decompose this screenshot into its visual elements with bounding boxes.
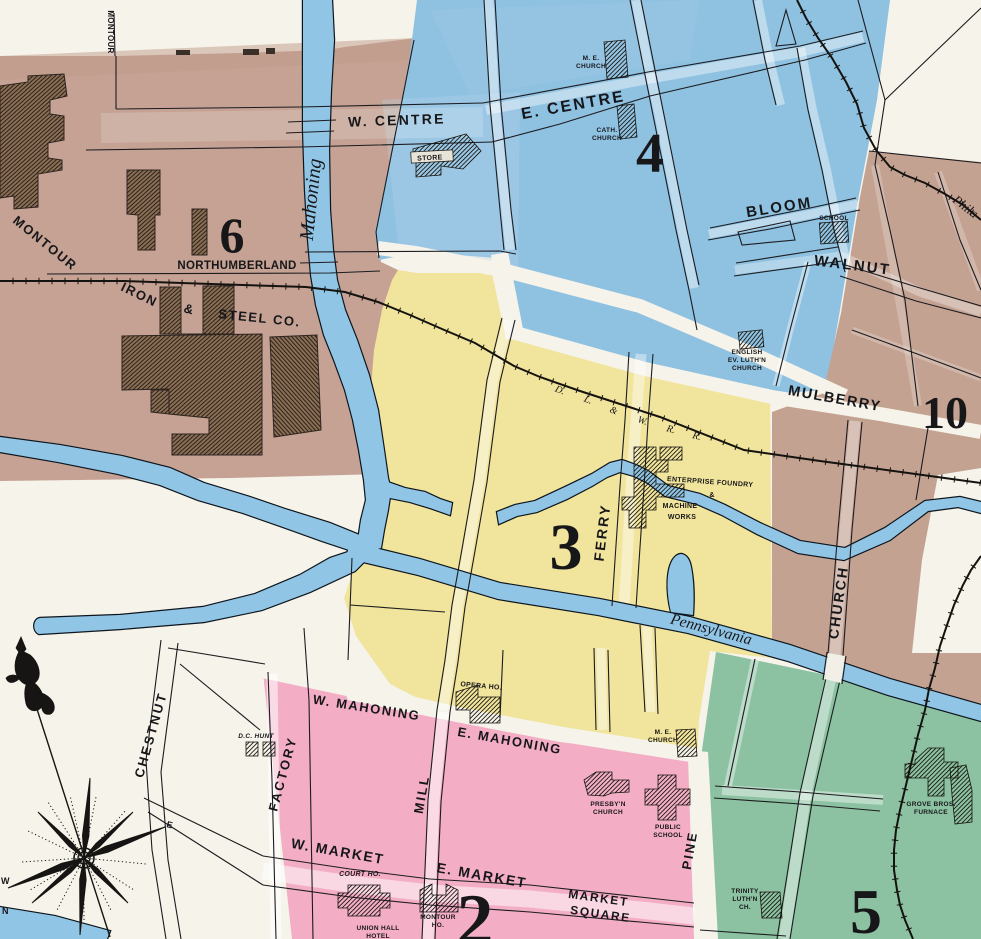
svg-text:CATH.: CATH. — [597, 127, 618, 134]
svg-text:CHURCH: CHURCH — [592, 135, 622, 142]
svg-text:LUTH'N: LUTH'N — [732, 896, 757, 903]
svg-text:4: 4 — [636, 123, 664, 185]
svg-text:M. E.: M. E. — [655, 729, 672, 736]
svg-text:GROVE BROS.: GROVE BROS. — [906, 801, 955, 808]
svg-text:STORE: STORE — [417, 154, 443, 162]
svg-text:TRINITY: TRINITY — [731, 888, 759, 895]
svg-text:WORKS: WORKS — [668, 514, 696, 521]
svg-text:CH.: CH. — [739, 904, 751, 911]
svg-text:2: 2 — [457, 880, 494, 939]
svg-text:W. CENTRE: W. CENTRE — [348, 110, 446, 129]
svg-text:SCHOOL: SCHOOL — [819, 215, 849, 222]
svg-text:5: 5 — [850, 876, 882, 939]
svg-text:D.C. HUNT: D.C. HUNT — [238, 733, 274, 740]
svg-text:EV. LUTH'N: EV. LUTH'N — [728, 357, 766, 364]
svg-text:CHURCH: CHURCH — [732, 365, 762, 372]
svg-text:10: 10 — [922, 387, 968, 438]
svg-text:W: W — [1, 876, 10, 886]
svg-text:PUBLIC: PUBLIC — [655, 824, 681, 831]
svg-text:FURNACE: FURNACE — [914, 809, 948, 816]
svg-text:ENGLISH: ENGLISH — [732, 349, 763, 356]
svg-text:PRESBY'N: PRESBY'N — [590, 801, 625, 808]
svg-text:MONTOUR: MONTOUR — [420, 914, 456, 921]
svg-text:MONTOUR: MONTOUR — [106, 10, 115, 53]
svg-text:COURT HO.: COURT HO. — [339, 871, 381, 878]
svg-text:SCHOOL: SCHOOL — [653, 832, 683, 839]
svg-text:CHURCH: CHURCH — [593, 809, 623, 816]
svg-text:MACHINE: MACHINE — [663, 503, 698, 510]
svg-text:CHURCH: CHURCH — [648, 737, 678, 744]
svg-text:3: 3 — [550, 511, 583, 584]
svg-text:N: N — [2, 906, 9, 916]
svg-text:CHURCH: CHURCH — [576, 63, 606, 70]
svg-text:&: & — [709, 492, 714, 499]
svg-text:HOTEL: HOTEL — [366, 933, 390, 939]
svg-text:UNION HALL: UNION HALL — [356, 925, 399, 932]
svg-text:HO.: HO. — [432, 922, 444, 929]
svg-text:M. E.: M. E. — [583, 55, 600, 62]
svg-text:6: 6 — [220, 207, 245, 263]
